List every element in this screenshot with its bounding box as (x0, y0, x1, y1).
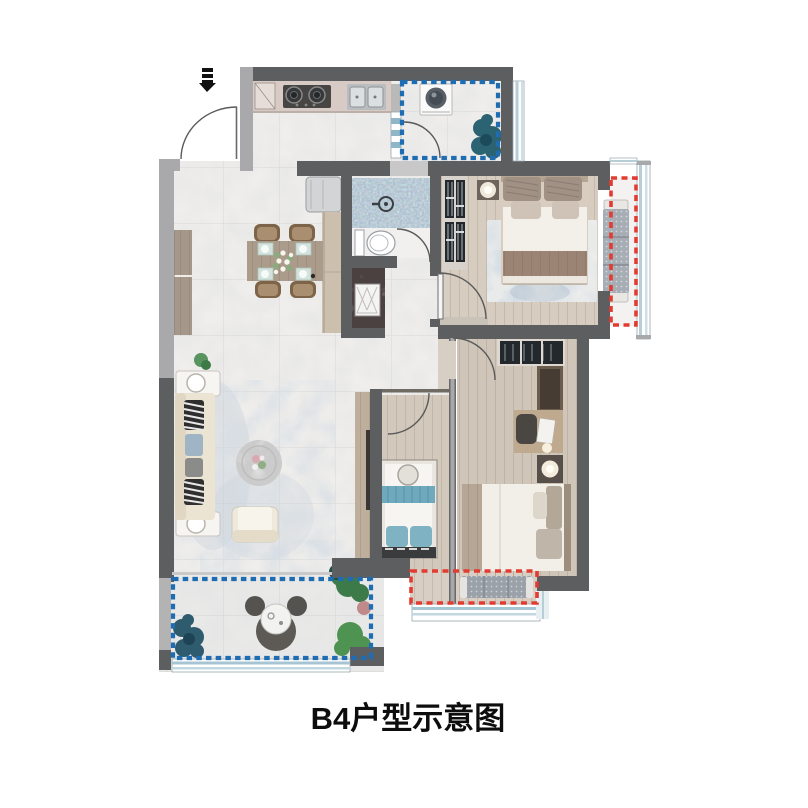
svg-text:B4户型示意图: B4户型示意图 (311, 701, 506, 736)
